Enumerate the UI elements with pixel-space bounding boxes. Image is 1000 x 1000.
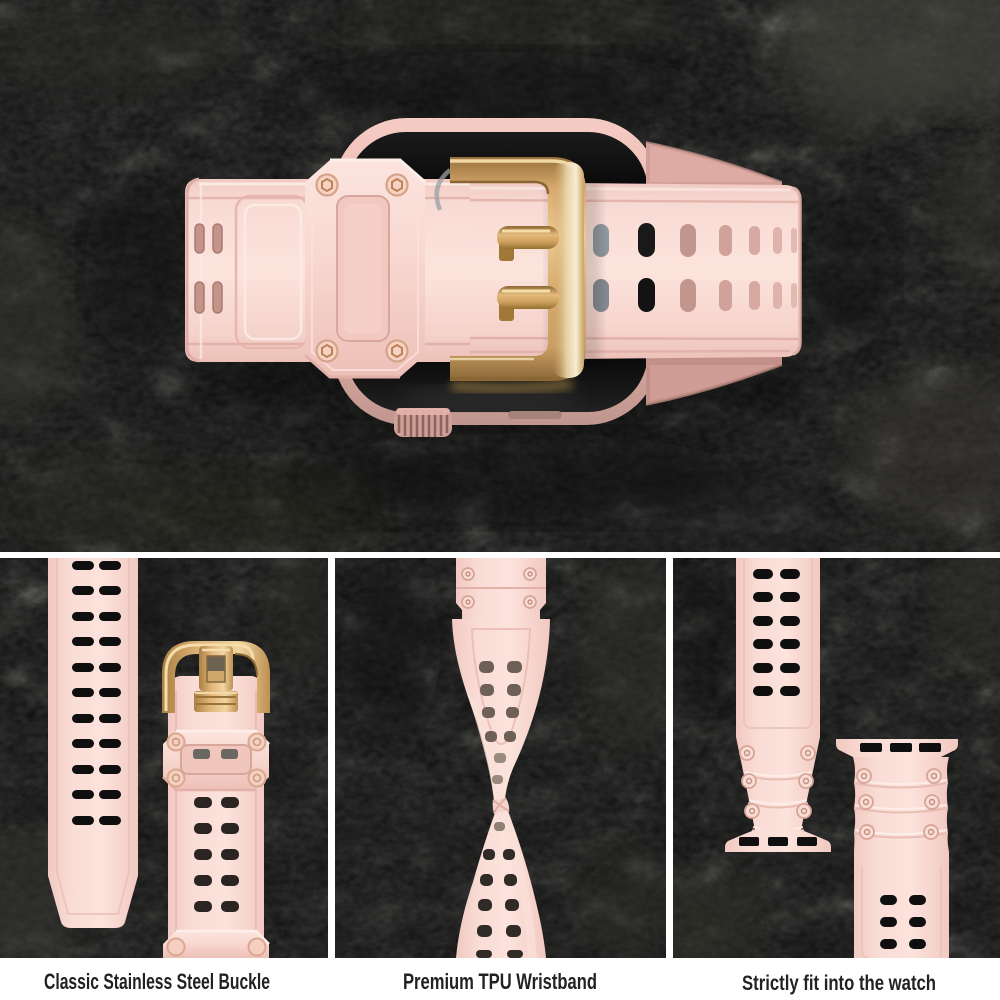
svg-text:Classic Stainless Steel Buckle: Classic Stainless Steel Buckle: [44, 969, 270, 994]
svg-text:Premium TPU Wristband: Premium TPU Wristband: [403, 969, 597, 994]
svg-text:Strictly fit into the watch: Strictly fit into the watch: [742, 971, 936, 995]
